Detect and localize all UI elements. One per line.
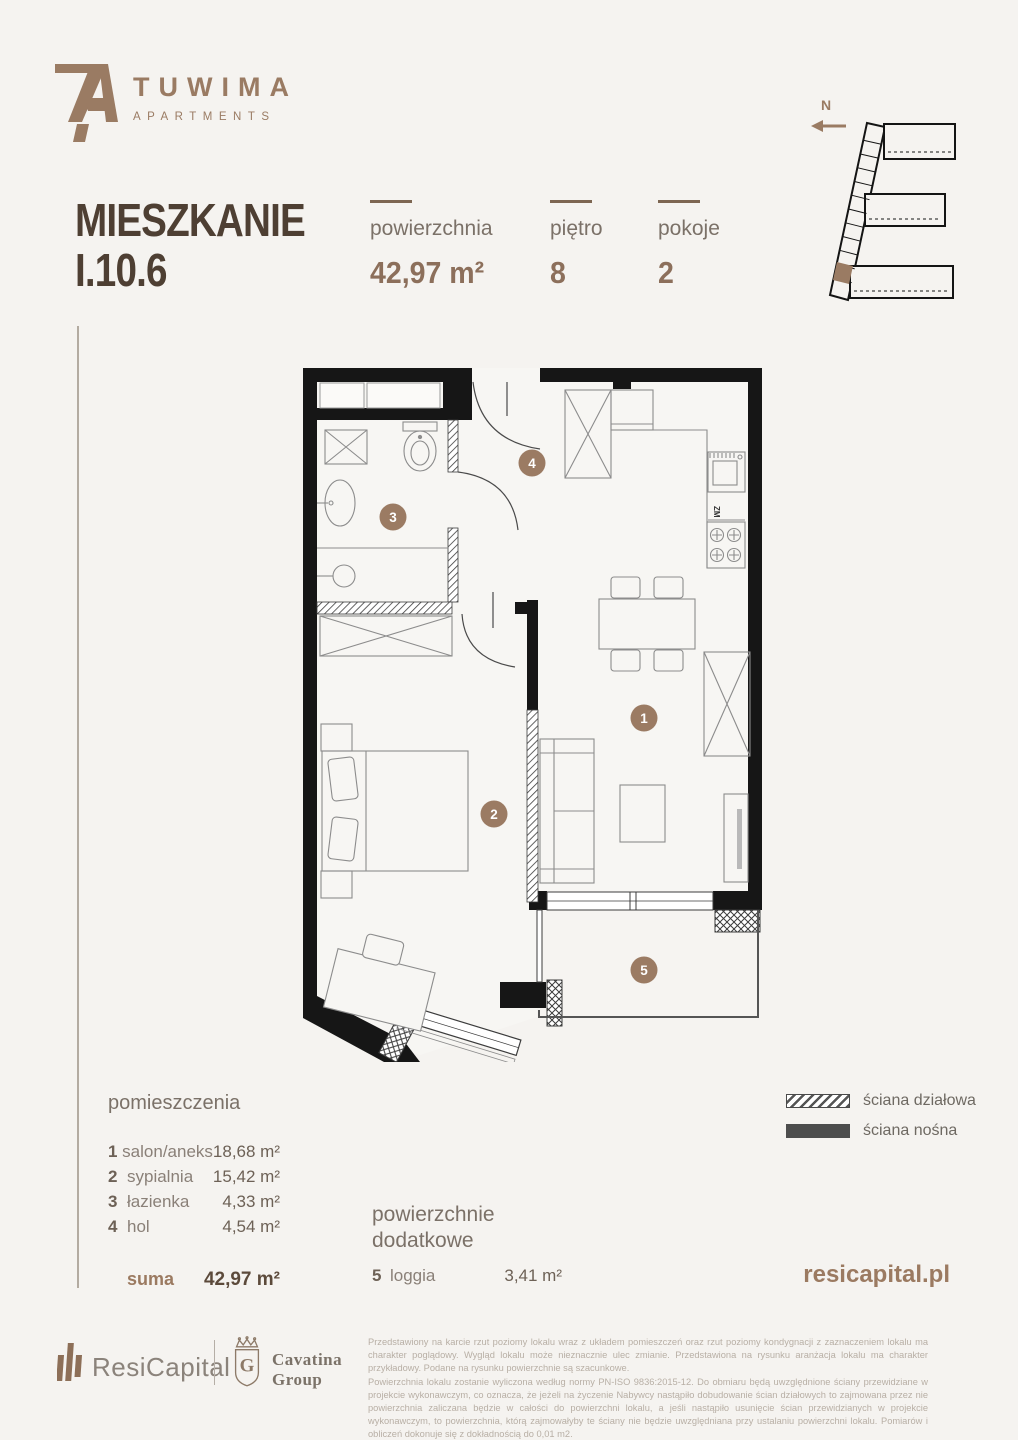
site-plan: N [800,70,960,315]
stat-rooms-value: 2 [658,255,741,291]
disclaimer-text: Przedstawiony na karcie rzut poziomy lok… [368,1336,928,1440]
room-badge-3: 3 [389,510,397,525]
page-title: MIESZKANIE I.10.6 [75,196,349,295]
room-row: 3 łazienka 4,33 m² [108,1192,280,1212]
stat-dash [658,200,700,203]
brand-name: TUWIMA APARTMENTS [133,72,298,123]
dishwasher-label: ZM [712,506,721,518]
room-row: 2 sypialnia 15,42 m² [108,1167,280,1187]
stat-dash [370,200,412,203]
website-link[interactable]: resicapital.pl [803,1261,950,1289]
title-line1: MIESZKANIE [75,196,305,246]
stat-floor: piętro 8 [550,200,640,291]
room-badge-1: 1 [640,711,648,726]
room-badge-5: 5 [640,963,648,978]
dining-table [599,599,695,649]
footer-divider [214,1340,215,1385]
logo-mark [55,64,119,144]
rooms-header: pomieszczenia [108,1092,240,1115]
bearing-wall-swatch [786,1124,850,1138]
stat-area-label: powierzchnia [370,217,520,241]
left-rule [77,326,79,1288]
living-room-window [547,892,713,910]
legend-bearing-label: ściana nośna [863,1122,957,1140]
room-badge-4: 4 [528,456,536,471]
stat-dash [550,200,592,203]
additional-row: 5 loggia 3,41 m² [372,1266,562,1286]
legend: ściana działowa ściana nośna [786,1092,976,1140]
stat-rooms-label: pokoje [658,217,748,241]
resicapital-logo-icon [57,1341,83,1385]
brand-word: TUWIMA [133,72,298,103]
suma-label: suma [127,1269,204,1290]
room-row: 4 hol 4,54 m² [108,1217,280,1237]
title-line2: I.10.6 [75,246,305,296]
partition-wall-swatch [786,1094,850,1108]
north-arrow-icon [811,120,846,132]
legend-partition-label: ściana działowa [863,1092,976,1110]
cavatina-monogram: G [240,1356,255,1377]
brand-subtitle: APARTMENTS [133,111,298,123]
stat-rooms: pokoje 2 [658,200,748,291]
room-badge-2: 2 [490,807,498,822]
stat-area-value: 42,97 m² [370,255,508,291]
loggia-left-wall [537,910,542,982]
top-shaft [320,383,440,408]
rooms-list: 1 salon/aneks 18,68 m² 2 sypialnia 15,42… [108,1142,280,1291]
additional-header: powierzchnie dodatkowe [372,1202,495,1255]
stat-area: powierzchnia 42,97 m² [370,200,520,291]
suma-row: suma 42,97 m² [108,1269,280,1291]
suma-value: 42,97 m² [204,1269,280,1291]
cavatina-logo-text: Cavatina Group [272,1350,342,1389]
north-label: N [821,97,831,113]
floor-plan: ZM 1 2 3 4 5 [300,362,770,1062]
resicapital-logo-text: ResiCapital [92,1352,230,1383]
stat-floor-label: piętro [550,217,640,241]
stat-floor-value: 8 [550,255,633,291]
apartment-card-page: TUWIMA APARTMENTS MIESZKANIE I.10.6 powi… [0,0,1018,1440]
cavatina-crest-icon: G [228,1336,266,1388]
room-row: 1 salon/aneks 18,68 m² [108,1142,280,1162]
